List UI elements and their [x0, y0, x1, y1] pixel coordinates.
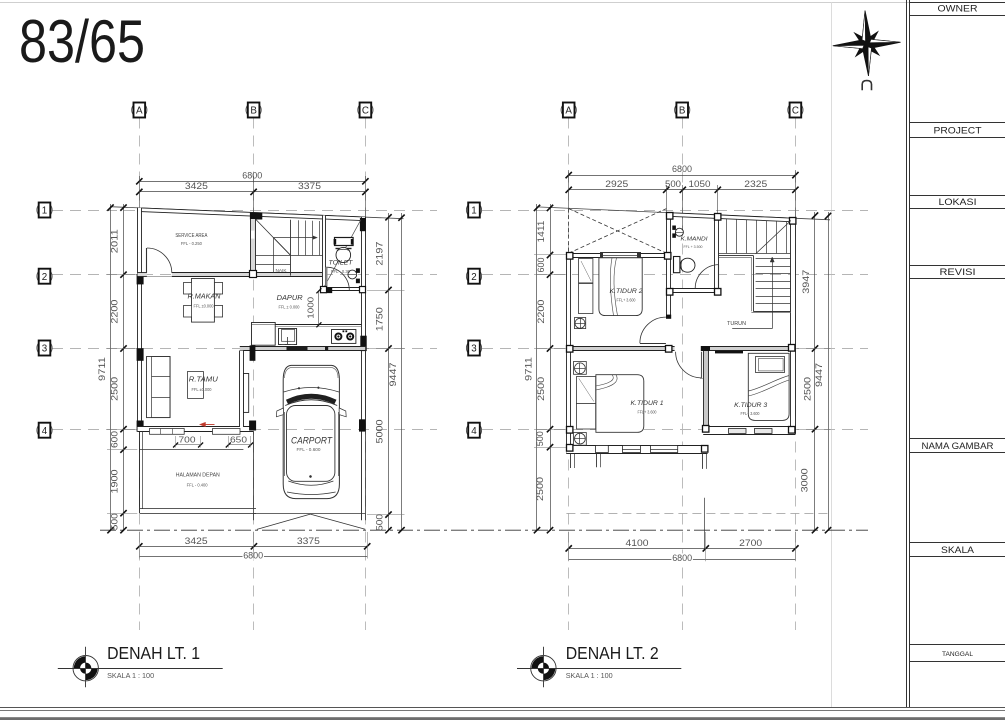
- svg-text:FFL+ 3.600: FFL+ 3.600: [741, 411, 761, 416]
- svg-text:1000: 1000: [306, 297, 316, 319]
- svg-text:2: 2: [42, 272, 47, 283]
- svg-text:DENAH LT. 2: DENAH LT. 2: [566, 643, 659, 663]
- svg-text:9711: 9711: [523, 357, 533, 381]
- svg-text:FFL - 0.30: FFL - 0.30: [331, 269, 351, 274]
- svg-text:9447: 9447: [388, 363, 398, 387]
- svg-text:3425: 3425: [185, 181, 208, 191]
- svg-text:FFL - 0.400: FFL - 0.400: [187, 482, 209, 487]
- svg-text:1: 1: [471, 206, 476, 217]
- svg-text:2700: 2700: [739, 538, 762, 548]
- svg-text:9711: 9711: [97, 357, 107, 381]
- svg-text:R.TAMU: R.TAMU: [189, 377, 219, 384]
- svg-text:600: 600: [536, 258, 546, 273]
- svg-text:1900: 1900: [110, 470, 120, 494]
- svg-text:K.TIDUR 1: K.TIDUR 1: [631, 400, 664, 407]
- svg-text:3000: 3000: [800, 468, 810, 492]
- svg-text:2500: 2500: [803, 377, 813, 401]
- svg-text:K.MANDI: K.MANDI: [681, 236, 708, 242]
- svg-text:1411: 1411: [536, 221, 546, 243]
- svg-text:6800: 6800: [242, 170, 262, 180]
- svg-text:500: 500: [374, 514, 384, 531]
- svg-text:3: 3: [471, 344, 477, 355]
- svg-text:REVISI: REVISI: [940, 267, 976, 277]
- svg-text:LOKASI: LOKASI: [939, 197, 977, 207]
- svg-text:TOILET: TOILET: [329, 260, 354, 267]
- svg-text:1750: 1750: [374, 307, 384, 331]
- svg-text:3425: 3425: [185, 536, 208, 546]
- svg-text:83/65: 83/65: [19, 8, 145, 75]
- svg-text:FFL - 0.600: FFL - 0.600: [297, 447, 321, 452]
- svg-text:3375: 3375: [297, 536, 320, 546]
- svg-text:CARPORT: CARPORT: [291, 436, 333, 446]
- svg-text:4: 4: [471, 426, 477, 437]
- svg-text:FFL+ 3.600: FFL+ 3.600: [617, 297, 637, 302]
- svg-text:C: C: [362, 106, 369, 117]
- svg-text:500: 500: [535, 431, 545, 446]
- svg-text:FFL + 3.500: FFL + 3.500: [684, 244, 704, 249]
- svg-text:TANGGAL: TANGGAL: [942, 651, 973, 658]
- svg-text:HALAMAN DEPAN: HALAMAN DEPAN: [176, 473, 220, 479]
- svg-text:K.TIDUR 2: K.TIDUR 2: [610, 288, 643, 295]
- svg-text:6800: 6800: [243, 550, 263, 560]
- svg-text:2500: 2500: [535, 477, 545, 501]
- svg-text:2200: 2200: [536, 300, 546, 324]
- svg-text:FFL - 0.250: FFL - 0.250: [181, 241, 203, 246]
- svg-text:C: C: [792, 106, 799, 117]
- svg-text:3947: 3947: [801, 270, 811, 294]
- svg-text:4: 4: [42, 426, 48, 437]
- svg-text:9447: 9447: [814, 363, 824, 387]
- svg-text:3: 3: [42, 344, 48, 355]
- svg-text:700: 700: [179, 435, 196, 445]
- svg-text:1: 1: [42, 206, 47, 217]
- svg-text:FFL ± 0.000: FFL ± 0.000: [279, 304, 300, 309]
- svg-text:6800: 6800: [672, 164, 692, 174]
- svg-text:TURUN: TURUN: [727, 321, 746, 327]
- svg-text:600: 600: [110, 431, 120, 448]
- svg-text:6800: 6800: [672, 553, 692, 563]
- svg-text:A: A: [565, 106, 572, 117]
- svg-text:A: A: [136, 106, 143, 117]
- svg-text:FFL ±0.000: FFL ±0.000: [192, 387, 212, 392]
- svg-text:500: 500: [665, 179, 681, 189]
- svg-text:DENAH LT. 1: DENAH LT. 1: [107, 643, 200, 663]
- svg-text:DAPUR: DAPUR: [277, 295, 303, 302]
- svg-text:1050: 1050: [689, 179, 711, 189]
- svg-text:2200: 2200: [110, 300, 120, 324]
- svg-text:500: 500: [110, 513, 120, 530]
- svg-text:PROJECT: PROJECT: [934, 126, 983, 136]
- svg-text:SKALA 1 : 100: SKALA 1 : 100: [107, 671, 154, 680]
- svg-text:3375: 3375: [298, 181, 321, 191]
- svg-text:FFL ±0.000: FFL ±0.000: [194, 303, 214, 308]
- svg-text:5000: 5000: [374, 420, 384, 444]
- svg-text:2500: 2500: [110, 377, 120, 401]
- svg-text:2325: 2325: [744, 179, 767, 189]
- svg-text:SKALA 1 : 100: SKALA 1 : 100: [566, 671, 613, 680]
- svg-text:B: B: [250, 106, 257, 117]
- svg-text:2: 2: [471, 272, 476, 283]
- svg-text:2011: 2011: [110, 229, 120, 253]
- svg-text:B: B: [679, 106, 686, 117]
- svg-text:NAIK: NAIK: [276, 268, 288, 273]
- svg-text:2197: 2197: [374, 242, 384, 266]
- svg-text:SKALA: SKALA: [941, 545, 974, 555]
- svg-text:K.TIDUR 3: K.TIDUR 3: [734, 402, 767, 409]
- svg-text:FFL+ 3.600: FFL+ 3.600: [638, 410, 658, 415]
- svg-text:R.MAKAN: R.MAKAN: [188, 293, 222, 300]
- svg-text:SERVICE AREA: SERVICE AREA: [175, 233, 208, 239]
- svg-text:NAMA GAMBAR: NAMA GAMBAR: [922, 441, 995, 451]
- svg-text:2500: 2500: [536, 377, 546, 401]
- svg-text:650: 650: [230, 435, 247, 445]
- svg-text:2925: 2925: [605, 179, 628, 189]
- svg-text:4100: 4100: [626, 538, 649, 548]
- svg-text:OWNER: OWNER: [938, 4, 979, 14]
